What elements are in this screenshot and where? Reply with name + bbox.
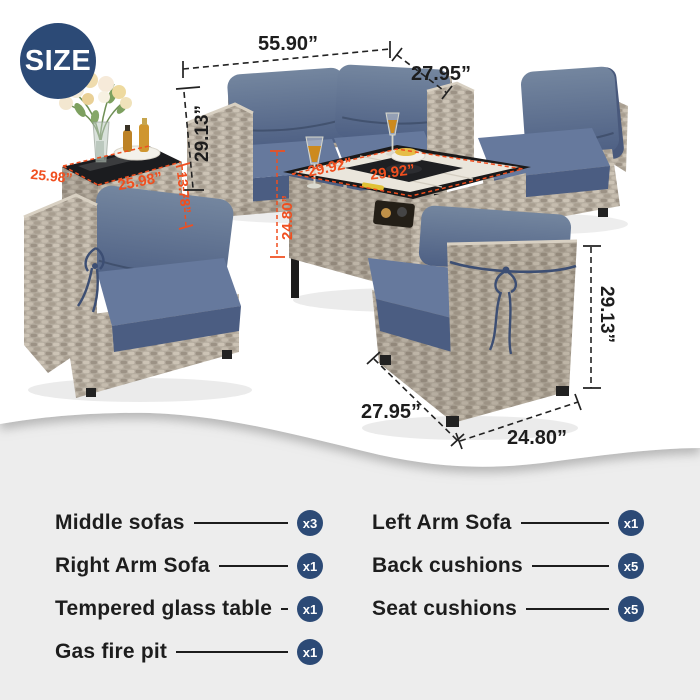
dim-loveseat-depth: 27.95” — [411, 63, 471, 85]
size-badge-label: SIZE — [25, 45, 91, 78]
list-item: Back cushions x5 — [372, 551, 644, 581]
count-badge: x1 — [297, 639, 323, 665]
count-badge: x1 — [297, 596, 323, 622]
item-label: Seat cushions — [372, 597, 517, 621]
item-label: Left Arm Sofa — [372, 511, 512, 535]
list-item: Right Arm Sofa x1 — [55, 551, 323, 581]
dim-sofa-height: 29.13” — [596, 286, 617, 343]
items-list: Middle sofas x3 Right Arm Sofa x1 Temper… — [0, 508, 700, 680]
size-badge: SIZE — [20, 23, 96, 99]
items-column-left: Middle sofas x3 Right Arm Sofa x1 Temper… — [55, 508, 323, 680]
connector-line — [521, 522, 610, 524]
connector-line — [176, 651, 288, 653]
connector-line — [194, 522, 288, 524]
count-badge: x5 — [618, 553, 644, 579]
count-badge: x3 — [297, 510, 323, 536]
connector-line — [526, 608, 609, 610]
list-item: Seat cushions x5 — [372, 594, 644, 624]
dim-fire-table-height: 24.80” — [279, 195, 296, 240]
list-item: Gas fire pit x1 — [55, 637, 323, 667]
list-item: Middle sofas x3 — [55, 508, 323, 538]
list-item: Tempered glass table x1 — [55, 594, 323, 624]
dim-loveseat-width: 55.90” — [258, 33, 318, 55]
count-badge: x1 — [618, 510, 644, 536]
count-badge: x5 — [618, 596, 644, 622]
item-label: Tempered glass table — [55, 597, 272, 621]
dim-sofa-width: 24.80” — [507, 427, 567, 449]
dim-sofa-depth: 27.95” — [361, 401, 421, 423]
connector-line — [219, 565, 288, 567]
control-knobs — [373, 200, 415, 228]
connector-line — [532, 565, 609, 567]
connector-line — [281, 608, 288, 610]
dim-loveseat-height: 29.13” — [192, 105, 213, 162]
list-item: Left Arm Sofa x1 — [372, 508, 644, 538]
item-label: Right Arm Sofa — [55, 554, 210, 578]
item-label: Middle sofas — [55, 511, 185, 535]
count-badge: x1 — [297, 553, 323, 579]
size-infographic: 55.90” 27.95” 29.13” 27.95” 24.80” 29.13… — [0, 0, 700, 700]
items-column-right: Left Arm Sofa x1 Back cushions x5 Seat c… — [372, 508, 644, 680]
item-label: Back cushions — [372, 554, 523, 578]
item-label: Gas fire pit — [55, 640, 167, 664]
